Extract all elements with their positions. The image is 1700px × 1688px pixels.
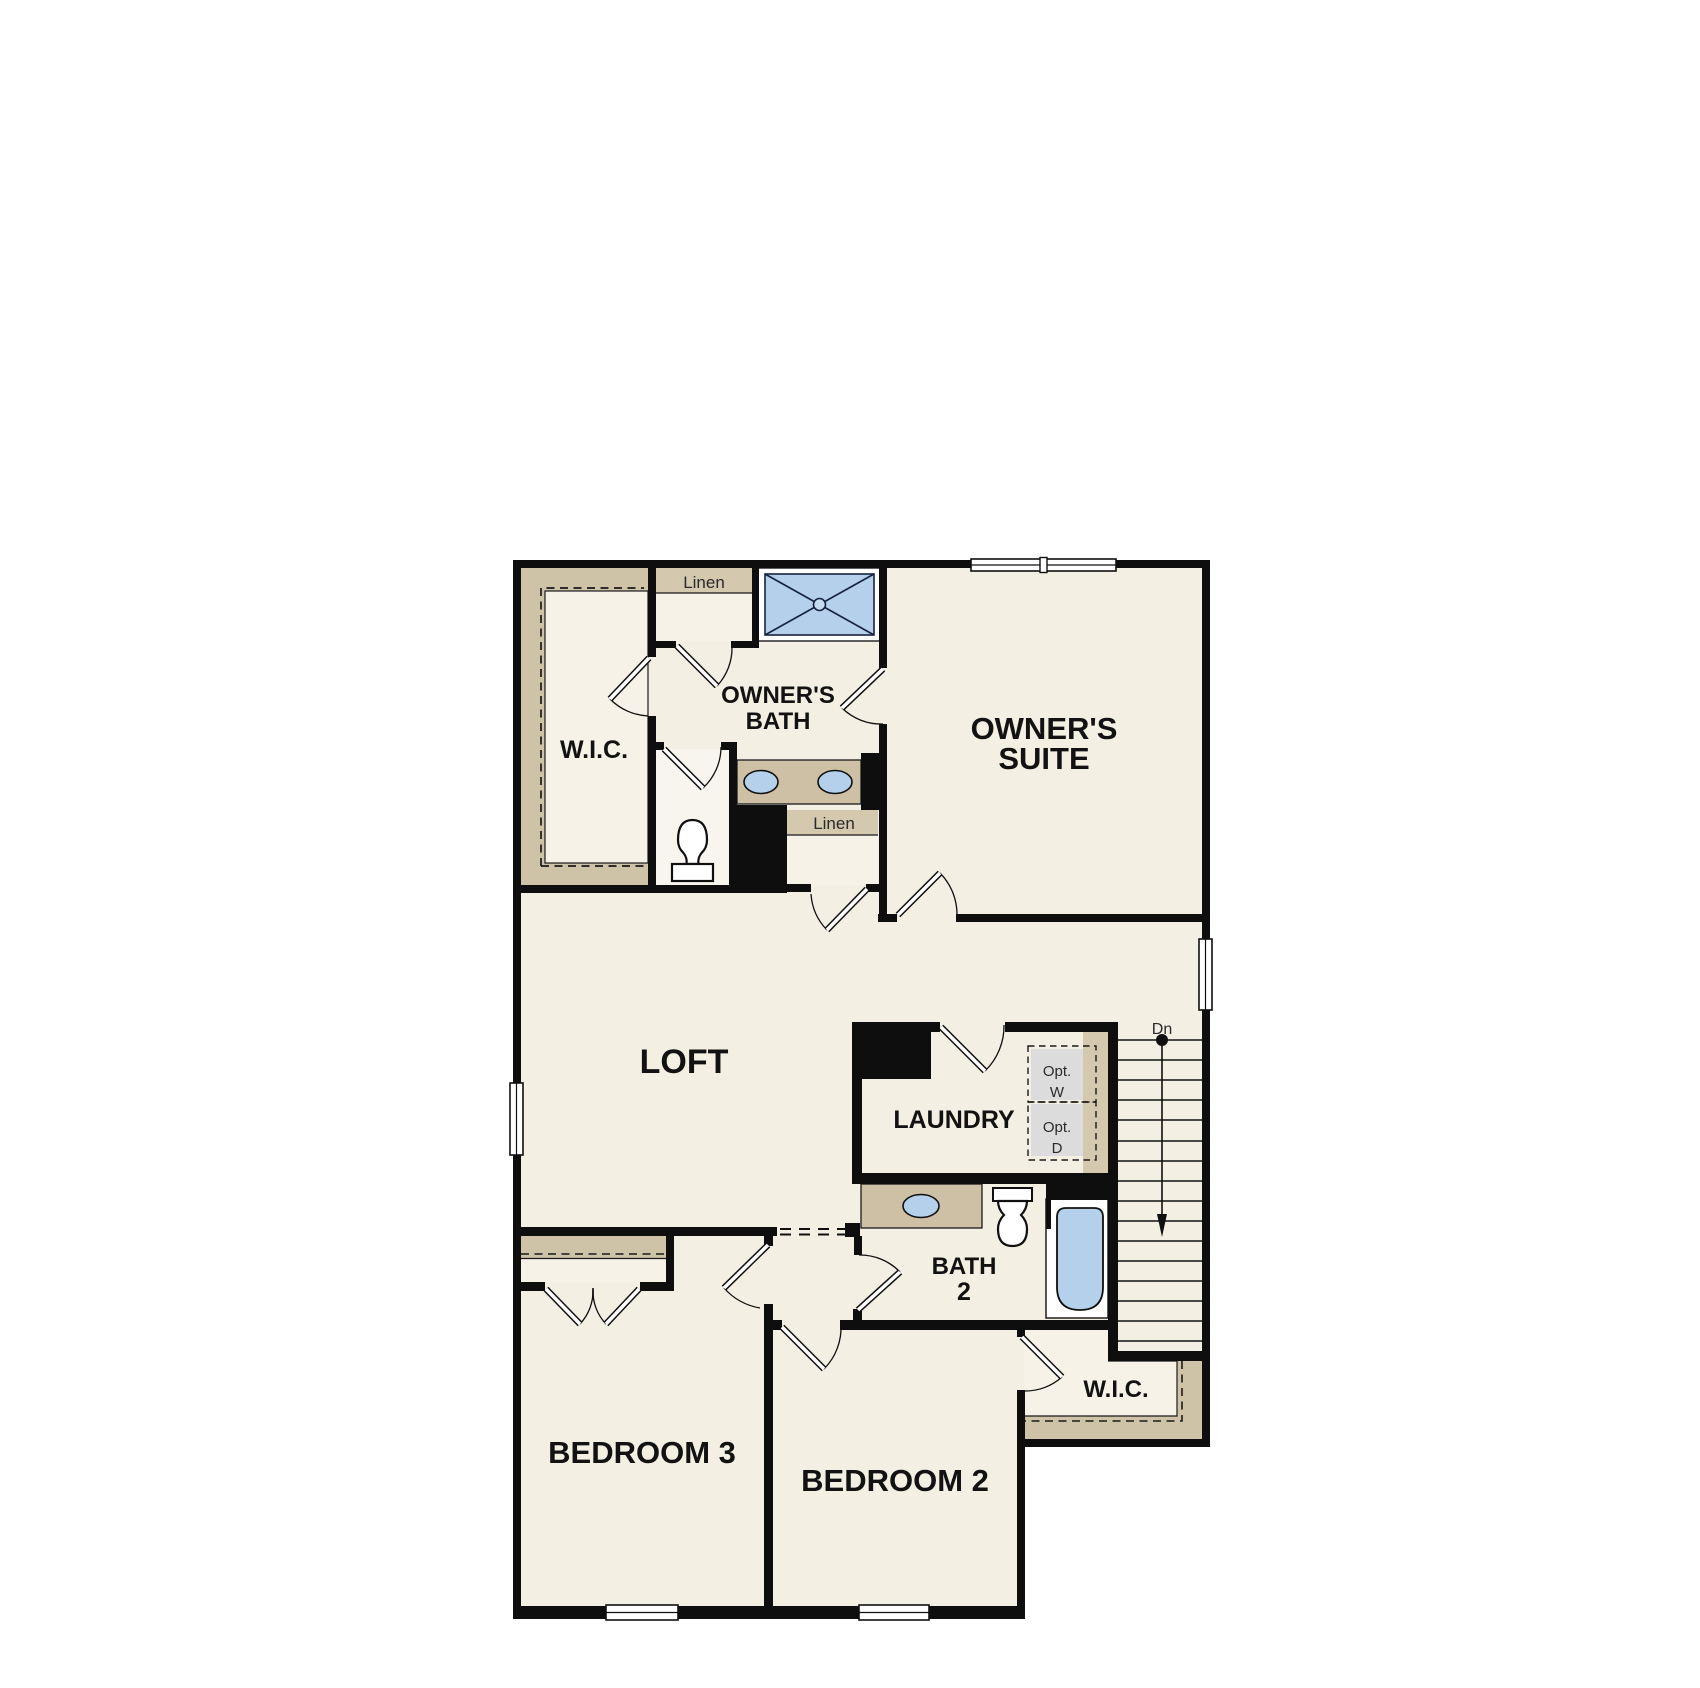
svg-text:LAUNDRY: LAUNDRY: [893, 1106, 1015, 1134]
svg-text:SUITE: SUITE: [998, 741, 1089, 776]
svg-text:2: 2: [957, 1278, 971, 1306]
svg-text:BEDROOM 3: BEDROOM 3: [548, 1435, 736, 1470]
svg-text:Linen: Linen: [813, 814, 855, 833]
svg-text:BATH: BATH: [932, 1253, 997, 1280]
svg-text:W: W: [1050, 1084, 1065, 1101]
svg-text:Opt.: Opt.: [1043, 1119, 1071, 1136]
svg-text:OWNER'S: OWNER'S: [721, 682, 835, 709]
svg-text:D: D: [1052, 1140, 1063, 1157]
svg-text:Linen: Linen: [683, 573, 725, 592]
svg-text:BEDROOM 2: BEDROOM 2: [801, 1463, 989, 1498]
svg-text:BATH: BATH: [746, 708, 811, 735]
svg-text:W.I.C.: W.I.C.: [1083, 1376, 1148, 1403]
svg-text:W.I.C.: W.I.C.: [560, 736, 628, 764]
svg-text:LOFT: LOFT: [640, 1043, 729, 1081]
svg-text:Opt.: Opt.: [1043, 1063, 1071, 1080]
svg-text:Dn: Dn: [1152, 1021, 1172, 1038]
